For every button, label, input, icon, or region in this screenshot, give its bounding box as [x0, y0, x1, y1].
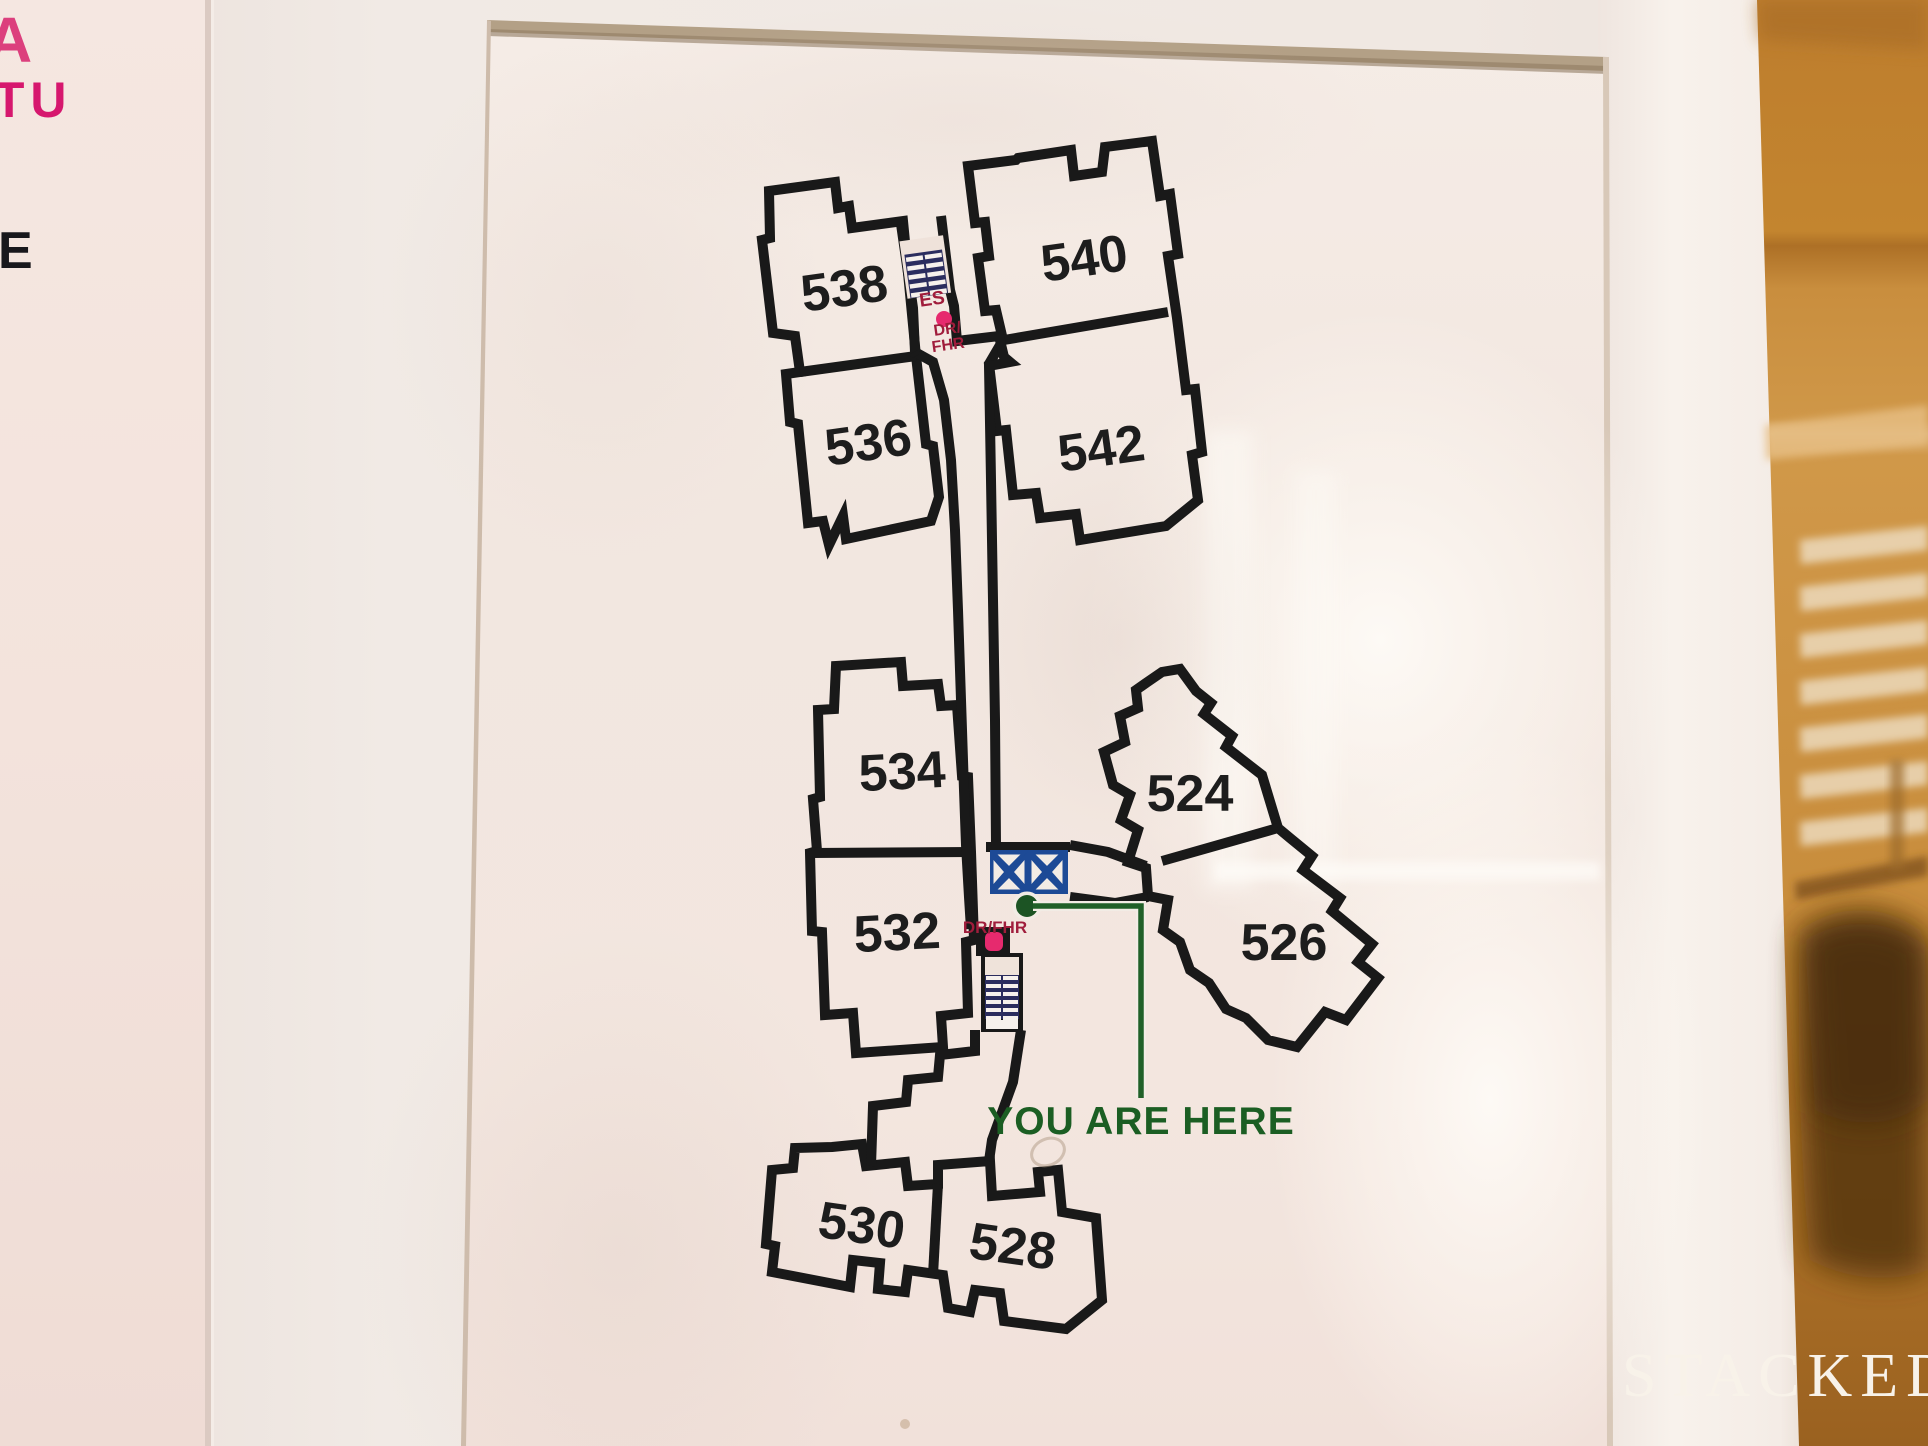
svg-text:532: 532: [852, 902, 942, 964]
svg-text:YOU ARE HERE: YOU ARE HERE: [987, 1100, 1294, 1143]
svg-text:ITU: ITU: [0, 72, 73, 128]
svg-text:530: 530: [815, 1191, 909, 1261]
svg-text:E: E: [0, 222, 33, 280]
svg-text:526: 526: [1241, 914, 1328, 972]
svg-text:534: 534: [857, 741, 947, 803]
svg-text:540: 540: [1037, 224, 1131, 294]
svg-text:A: A: [0, 4, 32, 76]
svg-text:542: 542: [1054, 414, 1148, 484]
svg-text:STACKED: STACKED: [1622, 1342, 1928, 1410]
svg-text:ES: ES: [918, 287, 946, 311]
svg-text:DR/FHR: DR/FHR: [963, 918, 1027, 937]
svg-text:524: 524: [1147, 765, 1234, 823]
svg-text:528: 528: [966, 1212, 1060, 1282]
svg-text:536: 536: [821, 408, 915, 478]
svg-text:538: 538: [797, 254, 891, 324]
